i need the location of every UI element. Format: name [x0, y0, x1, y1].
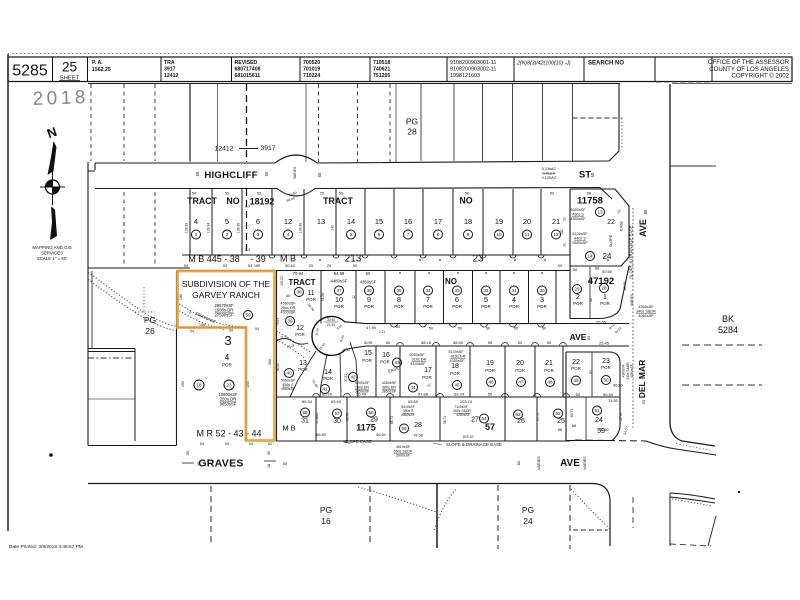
svg-text:15: 15 — [364, 350, 372, 357]
svg-text:139.34: 139.34 — [207, 223, 211, 233]
svg-text:M R 52 - 43 - 44: M R 52 - 43 - 44 — [196, 429, 261, 439]
svg-text:6: 6 — [378, 232, 381, 237]
svg-text:GARVEY RANCH: GARVEY RANCH — [192, 290, 260, 300]
svg-text:TRA: TRA — [164, 60, 175, 66]
svg-text:VARIES: VARIES — [537, 456, 541, 470]
svg-text:4960sSF: 4960sSF — [281, 387, 296, 391]
svg-text:32: 32 — [483, 288, 489, 293]
svg-text:50: 50 — [558, 264, 562, 268]
svg-text:VARIES: VARIES — [630, 293, 634, 306]
svg-text:19: 19 — [486, 360, 494, 367]
svg-text:PG: PG — [406, 117, 418, 127]
svg-text:SERVICES: SERVICES — [41, 251, 63, 256]
svg-text:43: 43 — [394, 360, 400, 365]
svg-text:213: 213 — [345, 254, 362, 265]
svg-text:BK: BK — [722, 314, 734, 324]
svg-text:25: 25 — [557, 418, 565, 425]
svg-text:1: 1 — [603, 294, 607, 301]
svg-text:50: 50 — [486, 327, 490, 331]
svg-text:340s S&DR: 340s S&DR — [636, 310, 656, 314]
svg-text:42: 42 — [350, 375, 356, 380]
svg-text:POR: POR — [571, 366, 581, 371]
svg-text:POR: POR — [295, 332, 305, 337]
svg-text:66.71: 66.71 — [390, 416, 394, 424]
svg-text:50: 50 — [550, 191, 555, 196]
svg-text:55: 55 — [401, 426, 407, 431]
svg-text:POR: POR — [364, 304, 374, 309]
svg-text:103.24: 103.24 — [460, 399, 473, 404]
svg-text:54: 54 — [192, 191, 197, 196]
svg-text:4280sSF: 4280sSF — [456, 413, 470, 417]
svg-text:91.56: 91.56 — [321, 293, 325, 301]
svg-text:11: 11 — [307, 290, 314, 297]
svg-text:50: 50 — [586, 335, 591, 340]
svg-text:POR: POR — [380, 360, 390, 365]
svg-text:30: 30 — [539, 288, 545, 293]
svg-text:50.49: 50.49 — [356, 392, 367, 397]
svg-text:701019: 701019 — [303, 67, 320, 73]
svg-text:140: 140 — [560, 229, 564, 235]
svg-text:17: 17 — [424, 367, 432, 374]
svg-text:10: 10 — [496, 232, 502, 237]
svg-text:50: 50 — [573, 267, 578, 272]
svg-text:17: 17 — [434, 217, 442, 226]
svg-text:5: 5 — [225, 217, 229, 226]
svg-text:70: 70 — [563, 243, 567, 247]
svg-text:65.50: 65.50 — [316, 433, 326, 437]
svg-text:POR: POR — [423, 304, 433, 309]
svg-text:50: 50 — [429, 327, 433, 331]
svg-text:57: 57 — [485, 422, 495, 432]
svg-text:47.90: 47.90 — [366, 325, 377, 330]
svg-text:M B: M B — [282, 424, 295, 433]
svg-text:2: 2 — [576, 294, 580, 301]
svg-text:POR: POR — [544, 368, 554, 373]
svg-text:0.01s S: 0.01s S — [543, 172, 556, 176]
svg-text:681015611: 681015611 — [235, 73, 261, 79]
svg-text:M B: M B — [280, 254, 296, 264]
svg-text:8: 8 — [437, 232, 440, 237]
svg-text:DEL MAR: DEL MAR — [637, 360, 647, 399]
svg-text:54: 54 — [184, 264, 188, 268]
svg-text:29: 29 — [574, 287, 580, 292]
svg-text:58.71: 58.71 — [443, 416, 447, 424]
svg-text:VARIES: VARIES — [293, 166, 297, 179]
svg-text:POR: POR — [450, 371, 460, 376]
svg-text:POR: POR — [362, 358, 372, 363]
svg-text:1: 1 — [195, 232, 198, 237]
svg-text:66: 66 — [572, 423, 577, 428]
svg-text:53: 53 — [248, 264, 252, 268]
svg-text:5680sSF: 5680sSF — [572, 241, 588, 245]
svg-text:50: 50 — [488, 340, 493, 345]
svg-text:8: 8 — [397, 295, 401, 304]
svg-text:POR: POR — [222, 363, 232, 368]
svg-text:21: 21 — [545, 360, 553, 367]
svg-text:48: 48 — [547, 380, 553, 385]
svg-text:56: 56 — [368, 410, 374, 415]
svg-text:13: 13 — [597, 210, 603, 215]
svg-text:4330sSF: 4330sSF — [280, 311, 296, 315]
svg-text:23: 23 — [602, 358, 610, 365]
svg-text:26: 26 — [517, 418, 525, 425]
svg-text:3850sSF: 3850sSF — [382, 390, 397, 394]
svg-text:SLOPE & DRAINAGE EASE: SLOPE & DRAINAGE EASE — [629, 225, 634, 278]
svg-text:24: 24 — [595, 417, 603, 424]
svg-text:65.60: 65.60 — [408, 399, 419, 404]
svg-text:P. A.: P. A. — [92, 60, 103, 66]
svg-text:40: 40 — [286, 294, 290, 298]
svg-text:2860sSF: 2860sSF — [401, 413, 415, 417]
svg-text:3917: 3917 — [260, 145, 275, 152]
svg-text:92: 92 — [589, 370, 593, 374]
svg-text:139.35: 139.35 — [237, 223, 241, 233]
svg-text:66: 66 — [558, 428, 562, 432]
svg-text:14: 14 — [587, 254, 593, 259]
svg-text:3917: 3917 — [164, 67, 176, 73]
svg-text:AVE: AVE — [638, 219, 648, 237]
svg-text:25: 25 — [327, 264, 331, 268]
svg-text:50: 50 — [603, 378, 609, 383]
svg-text:60.29: 60.29 — [322, 392, 333, 397]
svg-text:50: 50 — [590, 172, 595, 177]
svg-text:103.47: 103.47 — [462, 435, 474, 439]
svg-text:82.50: 82.50 — [276, 363, 280, 371]
svg-text:49: 49 — [573, 378, 579, 383]
svg-text:37.31: 37.31 — [344, 374, 348, 382]
svg-text:10: 10 — [335, 295, 343, 304]
svg-text:47: 47 — [518, 380, 524, 385]
svg-text:24: 24 — [523, 516, 533, 526]
svg-text:21: 21 — [552, 217, 560, 226]
svg-text:SEARCH NO: SEARCH NO — [588, 61, 624, 67]
svg-text:26: 26 — [145, 326, 155, 336]
svg-text:POR: POR — [509, 304, 519, 309]
svg-text:51: 51 — [594, 408, 600, 413]
svg-text:POR: POR — [334, 304, 344, 309]
svg-text:139.33: 139.33 — [185, 223, 189, 233]
svg-text:4: 4 — [194, 217, 198, 226]
svg-text:2018: 2018 — [32, 87, 89, 110]
svg-text:9108200903001-11: 9108200903001-11 — [450, 60, 496, 66]
svg-text:4060sSF: 4060sSF — [638, 314, 654, 318]
svg-text:- 39: - 39 — [250, 254, 266, 264]
svg-text:65.73: 65.73 — [536, 413, 540, 421]
svg-text:50: 50 — [386, 340, 391, 345]
svg-text:14: 14 — [324, 369, 332, 376]
svg-text:31: 31 — [301, 418, 309, 425]
svg-text:92: 92 — [352, 295, 356, 299]
svg-text:5050sSF: 5050sSF — [409, 353, 425, 357]
svg-text:11: 11 — [525, 232, 530, 237]
svg-text:87.05: 87.05 — [623, 282, 627, 291]
svg-text:POR: POR — [537, 304, 547, 309]
svg-text:POR: POR — [452, 304, 462, 309]
svg-text:1998121603: 1998121603 — [450, 73, 480, 79]
svg-text:13: 13 — [299, 360, 307, 367]
svg-text:25.45: 25.45 — [599, 341, 610, 346]
svg-text:79.94: 79.94 — [293, 271, 304, 276]
svg-text:4350sSF: 4350sSF — [360, 280, 377, 285]
svg-text:2(N)8(3)/42(100(10) -J): 2(N)8(3)/42(100(10) -J) — [516, 61, 571, 67]
svg-text:200: 200 — [181, 381, 185, 387]
svg-text:9: 9 — [467, 232, 470, 237]
svg-text:65.54: 65.54 — [302, 399, 313, 404]
svg-text:3900sSF: 3900sSF — [396, 454, 411, 458]
svg-text:50: 50 — [264, 171, 269, 176]
svg-text:POR: POR — [601, 365, 611, 370]
svg-text:NO: NO — [445, 277, 457, 286]
svg-text:16: 16 — [404, 217, 412, 226]
svg-text:GRAVES: GRAVES — [198, 458, 243, 470]
svg-text:58.95: 58.95 — [453, 340, 464, 345]
svg-text:88: 88 — [595, 267, 599, 271]
svg-text:REVISED: REVISED — [235, 60, 258, 66]
svg-text:SCALE 1" = 60': SCALE 1" = 60' — [37, 256, 68, 261]
svg-text:38: 38 — [296, 290, 302, 295]
svg-text:92: 92 — [589, 298, 593, 302]
svg-text:710518: 710518 — [373, 60, 390, 66]
svg-text:16: 16 — [321, 516, 331, 526]
svg-text:22: 22 — [607, 219, 615, 226]
svg-text:30: 30 — [333, 418, 341, 425]
svg-text:5: 5 — [350, 232, 353, 237]
svg-text:30: 30 — [267, 451, 271, 455]
svg-text:34: 34 — [425, 288, 431, 293]
svg-text:57.50: 57.50 — [600, 428, 609, 432]
svg-text:23: 23 — [226, 383, 232, 388]
svg-text:50: 50 — [576, 392, 581, 397]
svg-text:PG: PG — [144, 315, 156, 325]
svg-text:54: 54 — [255, 327, 259, 331]
svg-text:14: 14 — [347, 217, 355, 226]
svg-text:30.99: 30.99 — [364, 341, 373, 345]
svg-text:50: 50 — [339, 191, 344, 196]
svg-text:70: 70 — [563, 217, 567, 221]
svg-text:140: 140 — [331, 225, 335, 231]
svg-text:SLOPE & DRAINAGE EASE: SLOPE & DRAINAGE EASE — [446, 442, 502, 447]
svg-text:50: 50 — [353, 264, 357, 268]
svg-text:139.52: 139.52 — [280, 276, 284, 286]
svg-text:0.13sAC: 0.13sAC — [542, 167, 557, 171]
svg-text:30: 30 — [186, 451, 190, 455]
svg-text:25: 25 — [62, 60, 77, 75]
svg-text:18: 18 — [267, 464, 271, 468]
svg-text:100: 100 — [179, 294, 183, 300]
svg-text:11758: 11758 — [577, 196, 603, 207]
svg-text:18: 18 — [464, 217, 472, 226]
svg-text:910s DR: 910s DR — [412, 358, 427, 362]
svg-text:Date Printed: 3/8/2018 3:48:57: Date Printed: 3/8/2018 3:48:57 PM — [9, 544, 83, 550]
svg-text:1-3: 1-3 — [245, 248, 250, 252]
svg-text:9: 9 — [367, 295, 371, 304]
svg-text:50: 50 — [514, 327, 518, 331]
svg-text:12412: 12412 — [215, 146, 234, 153]
svg-text:0.125AC: 0.125AC — [542, 176, 557, 180]
svg-text:710224: 710224 — [303, 73, 320, 79]
svg-text:680717408: 680717408 — [235, 67, 261, 73]
svg-text:TRACT: TRACT — [187, 196, 217, 206]
svg-text:44: 44 — [410, 385, 416, 390]
svg-text:65.60: 65.60 — [376, 433, 386, 437]
svg-text:4350sSF: 4350sSF — [570, 217, 586, 221]
svg-text:52: 52 — [555, 411, 561, 416]
svg-text:25: 25 — [320, 191, 325, 196]
svg-text:2.11: 2.11 — [379, 330, 385, 334]
svg-text:4: 4 — [512, 295, 516, 304]
svg-text:50: 50 — [542, 327, 546, 331]
svg-text:50.50: 50.50 — [603, 392, 614, 397]
svg-text:12: 12 — [284, 217, 292, 226]
svg-text:PG: PG — [522, 505, 534, 515]
svg-text:27: 27 — [471, 417, 479, 424]
svg-text:33: 33 — [454, 288, 460, 293]
svg-text:54: 54 — [200, 442, 204, 446]
svg-text:1175: 1175 — [356, 423, 376, 433]
svg-text:50: 50 — [547, 340, 552, 345]
svg-text:50: 50 — [317, 172, 322, 177]
svg-text:AVE: AVE — [570, 332, 587, 342]
svg-text:NO: NO — [226, 196, 239, 206]
svg-text:46: 46 — [488, 380, 494, 385]
svg-text:23: 23 — [472, 254, 484, 265]
svg-text:57.88: 57.88 — [418, 392, 429, 397]
svg-text:AVE: AVE — [560, 458, 580, 469]
svg-text:51.74: 51.74 — [619, 413, 623, 422]
svg-text:POR: POR — [573, 301, 583, 306]
svg-text:59: 59 — [245, 313, 251, 318]
svg-text:5680sSF: 5680sSF — [570, 208, 586, 212]
svg-text:50.50: 50.50 — [602, 269, 613, 274]
svg-text:68.70: 68.70 — [346, 413, 350, 421]
svg-text:POR: POR — [394, 304, 404, 309]
svg-text:35: 35 — [396, 288, 402, 293]
svg-text:4: 4 — [225, 353, 230, 362]
svg-text:65.73: 65.73 — [570, 409, 574, 418]
svg-text:POR: POR — [515, 368, 525, 373]
svg-text:4110sSF: 4110sSF — [315, 412, 319, 424]
svg-text:28: 28 — [407, 127, 417, 137]
svg-text:SUBDIVISION OF THE: SUBDIVISION OF THE — [182, 279, 270, 289]
svg-text:54.99: 54.99 — [334, 271, 345, 276]
svg-text:HIGHCLIFF: HIGHCLIFF — [204, 170, 257, 181]
svg-text:25: 25 — [309, 264, 313, 268]
svg-text:POR: POR — [306, 297, 316, 302]
svg-text:54: 54 — [225, 442, 229, 446]
svg-text:54: 54 — [190, 330, 194, 334]
svg-text:19: 19 — [495, 217, 503, 226]
svg-text:2: 2 — [226, 232, 229, 237]
svg-text:SLOPE: SLOPE — [609, 234, 613, 247]
svg-text:65.60: 65.60 — [331, 399, 342, 404]
svg-text:53: 53 — [515, 412, 521, 417]
svg-text:815s DR: 815s DR — [451, 355, 466, 359]
svg-text:M B 445 - 38: M B 445 - 38 — [188, 254, 240, 264]
svg-text:57: 57 — [334, 411, 340, 416]
svg-text:6: 6 — [455, 295, 459, 304]
svg-text:430s S: 430s S — [572, 213, 584, 217]
svg-text:VARIES: VARIES — [583, 456, 587, 470]
svg-text:50: 50 — [396, 324, 401, 329]
svg-text:80: 80 — [643, 209, 648, 214]
svg-text:NO: NO — [459, 196, 472, 206]
svg-text:20: 20 — [523, 217, 531, 226]
svg-text:16: 16 — [382, 352, 390, 359]
svg-text:PG: PG — [320, 505, 332, 515]
svg-text:4480sSF: 4480sSF — [331, 279, 348, 284]
svg-text:40: 40 — [286, 371, 292, 376]
svg-text:37: 37 — [336, 288, 342, 293]
svg-text:50: 50 — [195, 171, 200, 176]
svg-text:7: 7 — [426, 295, 430, 304]
svg-text:4: 4 — [287, 232, 290, 237]
svg-text:45: 45 — [454, 383, 460, 388]
svg-text:27590sSF: 27590sSF — [214, 312, 234, 317]
svg-text:139.36: 139.36 — [299, 223, 303, 233]
svg-text:54: 54 — [249, 442, 253, 446]
svg-text:31: 31 — [511, 288, 517, 293]
svg-text:1562.25: 1562.25 — [92, 67, 111, 73]
svg-text:751205: 751205 — [373, 73, 390, 79]
svg-text:20: 20 — [516, 360, 524, 367]
svg-text:54: 54 — [481, 416, 487, 421]
svg-text:80: 80 — [516, 460, 521, 465]
svg-text:50.43: 50.43 — [285, 264, 295, 268]
svg-text:TRACT: TRACT — [288, 278, 315, 287]
svg-text:5284: 5284 — [718, 325, 738, 335]
svg-text:28: 28 — [601, 286, 607, 291]
svg-text:9108200903002-11: 9108200903002-11 — [450, 67, 496, 73]
svg-text:6100sSF: 6100sSF — [572, 232, 588, 236]
svg-text:53: 53 — [257, 191, 262, 196]
svg-text:50: 50 — [458, 327, 462, 331]
svg-text:9650sSF: 9650sSF — [220, 401, 237, 406]
svg-text:58: 58 — [302, 410, 308, 415]
svg-text:66.90: 66.90 — [613, 384, 623, 388]
svg-text:COPYRIGHT © 2002: COPYRIGHT © 2002 — [731, 73, 789, 80]
svg-text:12412: 12412 — [164, 73, 179, 79]
svg-text:54: 54 — [229, 329, 233, 333]
svg-text:EASE: EASE — [620, 220, 624, 231]
svg-text:4140sSF: 4140sSF — [410, 362, 426, 366]
svg-text:24: 24 — [603, 252, 612, 261]
svg-text:700520: 700520 — [303, 60, 320, 66]
svg-text:POR: POR — [298, 367, 308, 372]
svg-text:50: 50 — [488, 392, 493, 397]
svg-text:4580sSF: 4580sSF — [280, 302, 296, 306]
svg-text:300: 300 — [268, 359, 272, 365]
svg-text:160: 160 — [254, 264, 260, 268]
svg-text:4360sSF: 4360sSF — [638, 305, 654, 309]
svg-text:5: 5 — [484, 295, 488, 304]
svg-text:18192: 18192 — [250, 197, 275, 207]
svg-text:3: 3 — [224, 333, 231, 348]
svg-text:53: 53 — [225, 191, 230, 196]
svg-text:3: 3 — [257, 232, 260, 237]
svg-text:MAPPING AND GIS: MAPPING AND GIS — [32, 245, 71, 250]
svg-text:36: 36 — [366, 288, 372, 293]
svg-text:50: 50 — [641, 399, 646, 404]
svg-text:18: 18 — [451, 363, 459, 370]
svg-text:POR: POR — [422, 375, 432, 380]
svg-text:50: 50 — [518, 340, 523, 345]
svg-text:52: 52 — [268, 442, 272, 446]
svg-text:5140sSF: 5140sSF — [448, 350, 464, 354]
svg-text:7: 7 — [407, 232, 410, 237]
svg-text:TRACT: TRACT — [323, 196, 353, 206]
svg-text:13: 13 — [317, 217, 325, 226]
svg-text:22: 22 — [572, 359, 580, 366]
